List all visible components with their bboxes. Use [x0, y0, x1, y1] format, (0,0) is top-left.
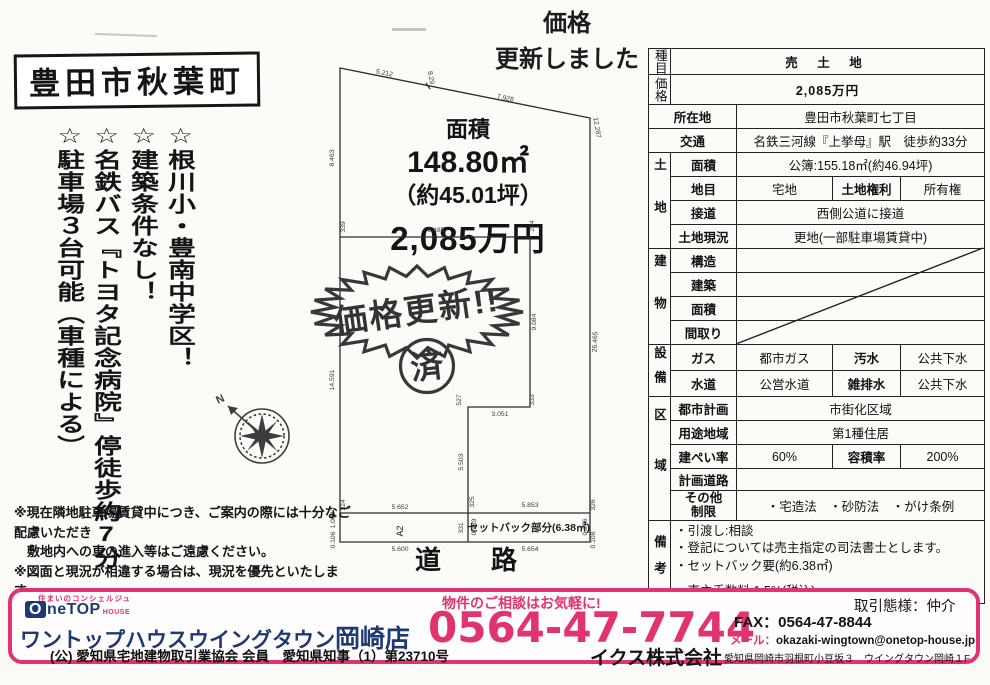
- plot-svg: 価格更新!! 済 A2 セットバック部分(6.38㎡) 5.2128.297.9…: [300, 50, 640, 575]
- building-layout-value: [737, 321, 985, 345]
- dimension-label: 8.463: [329, 149, 336, 166]
- email-label: メール：: [730, 635, 776, 647]
- deal-type: 取引態様：仲介: [854, 595, 956, 616]
- other-restrictions-value: ・宅造法 ・砂防法 ・がけ条例: [737, 491, 985, 521]
- access-value: 名鉄三河線『上挙母』駅 徒歩約33分: [737, 129, 985, 153]
- water-header: 水道: [671, 371, 737, 397]
- spec-table-wrap: 種目 売 土 地 価格 2,085万円 所在地 豊田市秋葉町七丁目 交通 名鉄三…: [648, 48, 984, 582]
- dimension-label: 331: [458, 522, 465, 534]
- dimension-label: 527: [456, 394, 463, 406]
- price-value: 2,085万円: [671, 75, 985, 105]
- use-district-value: 第1種住居: [737, 421, 985, 445]
- dimension-label: 339: [340, 221, 347, 233]
- dimension-label: 9.485: [427, 227, 444, 234]
- planned-road-header: 計画道路: [671, 469, 737, 491]
- building-structure-header: 構造: [671, 249, 737, 273]
- page-title: 豊田市秋葉町: [14, 51, 261, 109]
- plot-inner-line: [340, 237, 530, 542]
- dimension-label: 9.084: [531, 313, 538, 330]
- utilities-group-header: 設備: [649, 345, 671, 397]
- company-address: 愛知県岡崎市羽根町小豆坂３ ウイングタウン岡崎１F: [724, 650, 970, 665]
- land-rights-value: 所有権: [901, 177, 985, 201]
- dimension-label: 7.928: [496, 93, 514, 103]
- sewage-value: 公共下水: [901, 345, 985, 371]
- logo-o-mark: O: [25, 601, 46, 618]
- spec-table: 種目 売 土 地 価格 2,085万円 所在地 豊田市秋葉町七丁目 交通 名鉄三…: [648, 48, 985, 604]
- land-road-header: 接道: [671, 201, 737, 225]
- cityplan-value: 市街化区域: [737, 397, 985, 421]
- logo-wordmark: neTOP: [47, 601, 101, 618]
- dimension-label: 204: [529, 220, 536, 232]
- dimension-label: 5.853: [521, 502, 538, 509]
- gas-header: ガス: [671, 345, 737, 371]
- building-built-value: [737, 273, 985, 297]
- location-value: 豊田市秋葉町七丁目: [737, 105, 985, 129]
- land-group-header: 土地: [649, 153, 671, 249]
- setback-label: セットバック部分(6.38㎡): [468, 521, 590, 534]
- building-group-header: 建物: [649, 249, 671, 345]
- scan-artifact: [95, 33, 157, 37]
- access-header: 交通: [649, 129, 737, 153]
- drain-value: 公共下水: [901, 371, 985, 397]
- dimension-label: 5.652: [391, 504, 408, 511]
- building-structure-value: [737, 249, 985, 273]
- remark-line: ・セットバック要(約6.38㎡): [675, 558, 980, 576]
- dimension-label: 0.108: [590, 531, 597, 548]
- type-header: 種目: [649, 49, 671, 75]
- bcr-value: 60%: [737, 445, 833, 469]
- planned-road-value: [737, 469, 985, 491]
- building-built-header: 建築: [671, 273, 737, 297]
- dimension-label: 3.051: [491, 411, 508, 418]
- note-line: 敷地内への車の進入等はご遠慮ください。: [14, 542, 354, 562]
- dimension-label: 14.591: [329, 369, 336, 390]
- license-line: (公) 愛知県宅地建物取引業協会 会員 愛知県知事（1）第23710号: [50, 645, 449, 665]
- dimension-label: 5.503: [458, 453, 465, 470]
- remark-line: ・引渡し:相談: [675, 523, 980, 541]
- land-road-value: 西側公道に接道: [737, 201, 985, 225]
- email-value: okazaki-wingtown@onetop-house.jp: [776, 635, 975, 647]
- use-district-header: 用途地域: [671, 421, 737, 445]
- land-area-header: 面積: [671, 153, 737, 177]
- compass-north-label: N: [214, 392, 226, 406]
- logo-house-label: HOUSE: [103, 609, 130, 616]
- location-header: 所在地: [649, 105, 737, 129]
- sewage-header: 汚水: [833, 345, 901, 371]
- fax-number: FAX：0564-47-8844: [734, 611, 872, 632]
- dimension-label: 26.465: [592, 331, 600, 352]
- dimension-label: 8.29: [426, 71, 435, 85]
- stamp-text: 価格更新!!: [331, 281, 502, 341]
- price-header: 価格: [649, 75, 671, 105]
- land-status-value: 更地(一部駐車場賃貸中): [737, 225, 985, 249]
- dimension-label: 12.287: [591, 117, 602, 139]
- dimension-label: 333: [529, 394, 536, 406]
- dimension-label: 326: [590, 499, 597, 511]
- dimension-label: 5.600: [391, 546, 408, 553]
- land-status-header: 土地現況: [671, 225, 737, 249]
- building-area-value: [737, 297, 985, 321]
- building-area-header: 面積: [671, 297, 737, 321]
- sold-seal-text: 済: [409, 346, 447, 386]
- dimension-label: 325: [469, 496, 476, 508]
- onetop-logo: OneTOPHOUSE: [25, 601, 130, 619]
- type-value: 売 土 地: [671, 49, 985, 75]
- compass-icon: N: [198, 386, 310, 478]
- flyer-page: 豊田市秋葉町 価格 更新しました ☆根川小・豊南中学区！ ☆建築条件なし！ ☆名…: [0, 0, 990, 685]
- dimension-label: 0.976: [582, 518, 589, 535]
- land-area-value: 公簿:155.18㎡(約46.94坪): [737, 153, 985, 177]
- bcr-header: 建ぺい率: [671, 445, 737, 469]
- cityplan-header: 都市計画: [671, 397, 737, 421]
- zoning-group-header: 区域: [649, 397, 671, 521]
- building-layout-header: 間取り: [671, 321, 737, 345]
- footer: 住まいのコンシェルジュ OneTOPHOUSE ワントップハウスウイングタウン岡…: [8, 588, 980, 664]
- scan-artifact: [392, 28, 426, 31]
- company-name: イクス株式会社: [590, 643, 722, 670]
- gas-value: 都市ガス: [737, 345, 833, 371]
- far-value: 200%: [901, 445, 985, 469]
- drain-header: 雑排水: [833, 371, 901, 397]
- far-header: 容積率: [833, 445, 901, 469]
- road-label: 道 路: [415, 540, 529, 577]
- strip-a2-label: A2: [395, 525, 405, 536]
- land-rights-header: 土地権利: [833, 177, 901, 201]
- dimension-label: 0.989: [471, 518, 478, 535]
- water-value: 公営水道: [737, 371, 833, 397]
- land-category-value: 宅地: [737, 177, 833, 201]
- remark-line: ・登記については売主指定の司法書士とします。: [675, 540, 980, 558]
- dimension-label: 5.212: [375, 68, 393, 78]
- note-line: ※現在隣地駐車場賃貸中につき、ご案内の際には十分なご配慮いただき: [14, 503, 354, 542]
- notice-line1: 価格: [462, 6, 672, 42]
- land-category-header: 地目: [671, 177, 737, 201]
- email-line: メール：okazaki-wingtown@onetop-house.jp: [730, 632, 975, 648]
- other-restrictions-header: その他 制限: [671, 491, 737, 521]
- caution-notes: ※現在隣地駐車場賃貸中につき、ご案内の際には十分なご配慮いただき 敷地内への車の…: [14, 503, 354, 601]
